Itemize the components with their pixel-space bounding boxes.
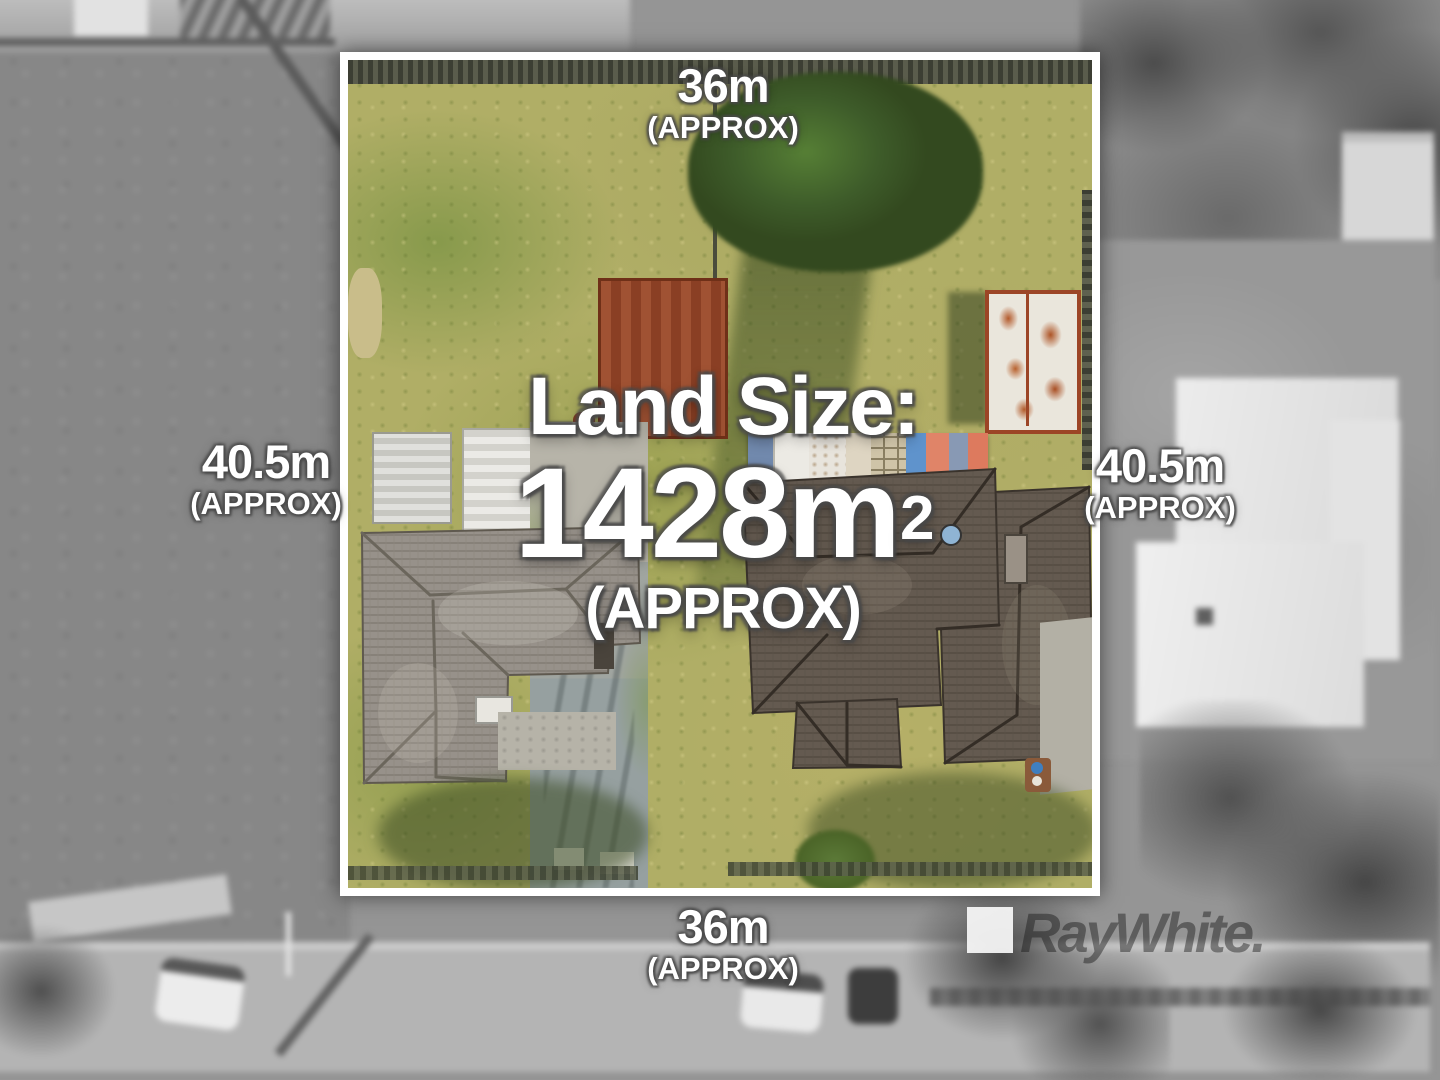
parked-car-white-left — [154, 956, 246, 1031]
street-tree-left — [0, 910, 140, 1080]
land-size-superscript: 2 — [900, 484, 931, 553]
dry-grass-patch — [348, 268, 382, 358]
dimension-qualifier: (APPROX) — [647, 953, 799, 984]
dimension-value: 36m — [647, 62, 799, 109]
aerial-property-photo: 36m (APPROX) 40.5m (APPROX) 40.5m (APPRO… — [0, 0, 1440, 1080]
rusty-shed-ridge — [1026, 290, 1029, 426]
land-size-value: 1428m2 — [514, 450, 931, 578]
front-fence-left — [348, 866, 638, 880]
satellite-dish — [941, 525, 961, 545]
rust-shed-shadow — [948, 292, 988, 424]
light-pole — [286, 912, 291, 976]
land-size-annotation: Land Size: 1428m2 (APPROX) — [514, 366, 931, 638]
land-size-title: Land Size: — [514, 366, 931, 448]
dimension-qualifier: (APPROX) — [190, 488, 342, 519]
dimension-label-top: 36m (APPROX) — [647, 62, 799, 143]
dimension-value: 40.5m — [190, 438, 342, 485]
boundary-fence-top — [0, 38, 335, 46]
patio-concrete — [498, 712, 616, 770]
dimension-label-bottom: 36m (APPROX) — [647, 903, 799, 984]
rusty-white-shed — [985, 290, 1081, 434]
roof-vent — [1196, 608, 1213, 625]
front-fence-right — [728, 862, 1092, 876]
land-size-number: 1428m — [514, 442, 898, 585]
watermark-square — [967, 907, 1013, 953]
white-shed — [372, 432, 452, 524]
dimension-value: 36m — [647, 903, 799, 950]
dimension-label-right: 40.5m (APPROX) — [1084, 442, 1236, 523]
dimension-label-left: 40.5m (APPROX) — [190, 438, 342, 519]
side-fence-right — [1082, 190, 1092, 470]
front-bush — [795, 830, 875, 888]
watermark-brand-text: RayWhite. — [1020, 900, 1264, 965]
chimney — [1005, 535, 1027, 583]
land-size-qualifier: (APPROX) — [514, 580, 931, 638]
neighbor-shed-top-right — [1342, 132, 1434, 240]
top-structure — [74, 0, 148, 36]
dimension-qualifier: (APPROX) — [1084, 492, 1236, 523]
play-equipment-detail — [1032, 776, 1042, 786]
dimension-qualifier: (APPROX) — [647, 112, 799, 143]
play-equipment-detail — [1031, 762, 1043, 774]
dimension-value: 40.5m — [1084, 442, 1236, 489]
